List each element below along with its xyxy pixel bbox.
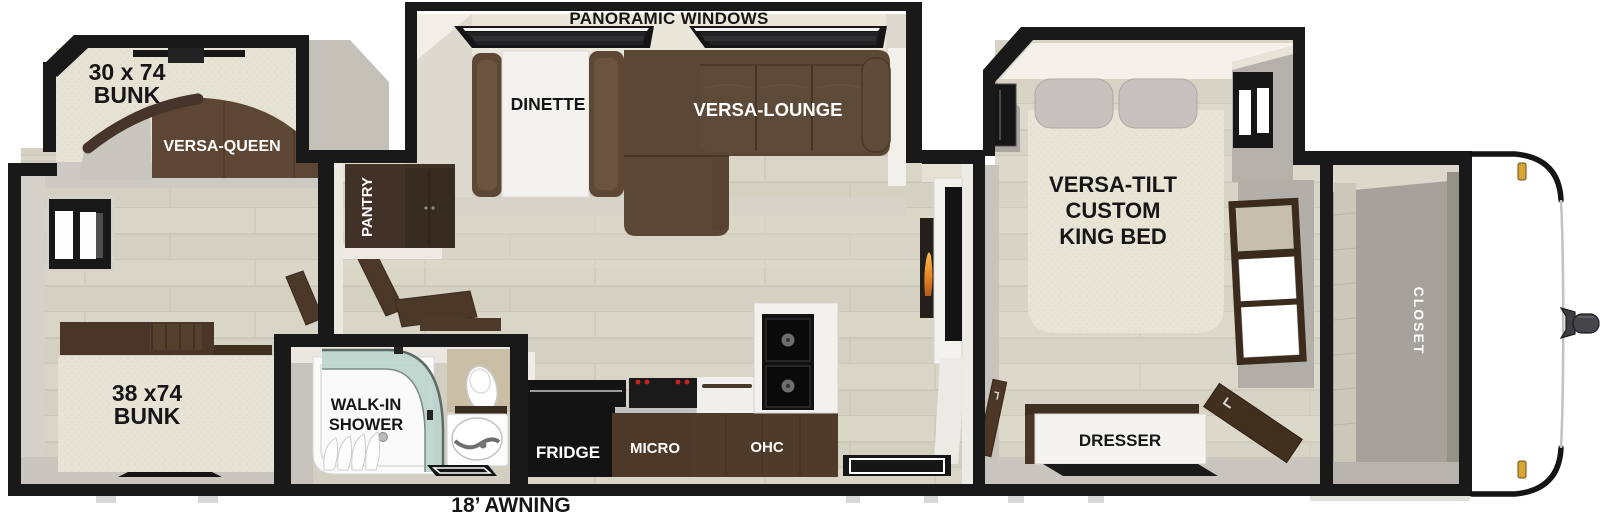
svg-text:OHC: OHC xyxy=(750,439,784,456)
svg-text:BUNK: BUNK xyxy=(114,403,181,429)
svg-text:18’ AWNING: 18’ AWNING xyxy=(451,494,570,516)
svg-text:DINETTE: DINETTE xyxy=(511,94,586,114)
svg-text:CLOSET: CLOSET xyxy=(1411,287,1427,356)
svg-text:PANTRY: PANTRY xyxy=(359,177,376,237)
svg-text:FRIDGE: FRIDGE xyxy=(536,443,600,462)
svg-text:MICRO: MICRO xyxy=(630,440,680,457)
svg-text:VERSA-QUEEN: VERSA-QUEEN xyxy=(163,138,280,155)
svg-text:SHOWER: SHOWER xyxy=(329,416,403,434)
svg-text:PANORAMIC WINDOWS: PANORAMIC WINDOWS xyxy=(569,9,768,28)
svg-text:VERSA-TILT: VERSA-TILT xyxy=(1049,172,1177,197)
svg-text:KING BED: KING BED xyxy=(1059,224,1167,249)
svg-text:DRESSER: DRESSER xyxy=(1079,431,1161,450)
svg-text:WALK-IN: WALK-IN xyxy=(331,396,402,414)
svg-text:CUSTOM: CUSTOM xyxy=(1066,198,1161,223)
svg-text:BUNK: BUNK xyxy=(94,82,161,108)
svg-text:VERSA-LOUNGE: VERSA-LOUNGE xyxy=(693,99,842,120)
